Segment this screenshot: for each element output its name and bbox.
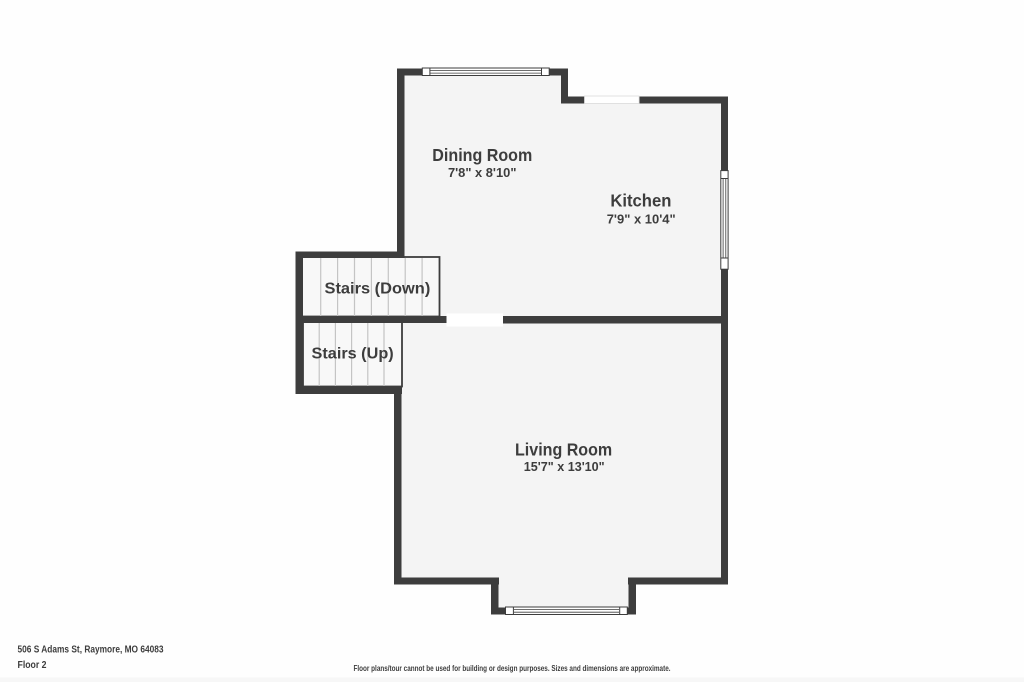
svg-text:Floor plans/tour cannot be use: Floor plans/tour cannot be used for buil… [354,664,671,673]
svg-text:Stairs (Up): Stairs (Up) [312,346,394,363]
svg-text:Floor 2: Floor 2 [18,660,47,671]
svg-text:Living Room: Living Room [515,439,612,459]
svg-text:Stairs (Down): Stairs (Down) [325,280,431,297]
svg-text:7'9" x 10'4": 7'9" x 10'4" [607,212,676,227]
svg-text:15'7" x 13'10": 15'7" x 13'10" [524,459,605,474]
svg-text:7'8" x 8'10": 7'8" x 8'10" [448,165,517,180]
svg-text:506 S Adams St, Raymore, MO 64: 506 S Adams St, Raymore, MO 64083 [18,645,164,656]
svg-text:Dining Room: Dining Room [432,145,532,165]
svg-text:Kitchen: Kitchen [610,191,671,211]
